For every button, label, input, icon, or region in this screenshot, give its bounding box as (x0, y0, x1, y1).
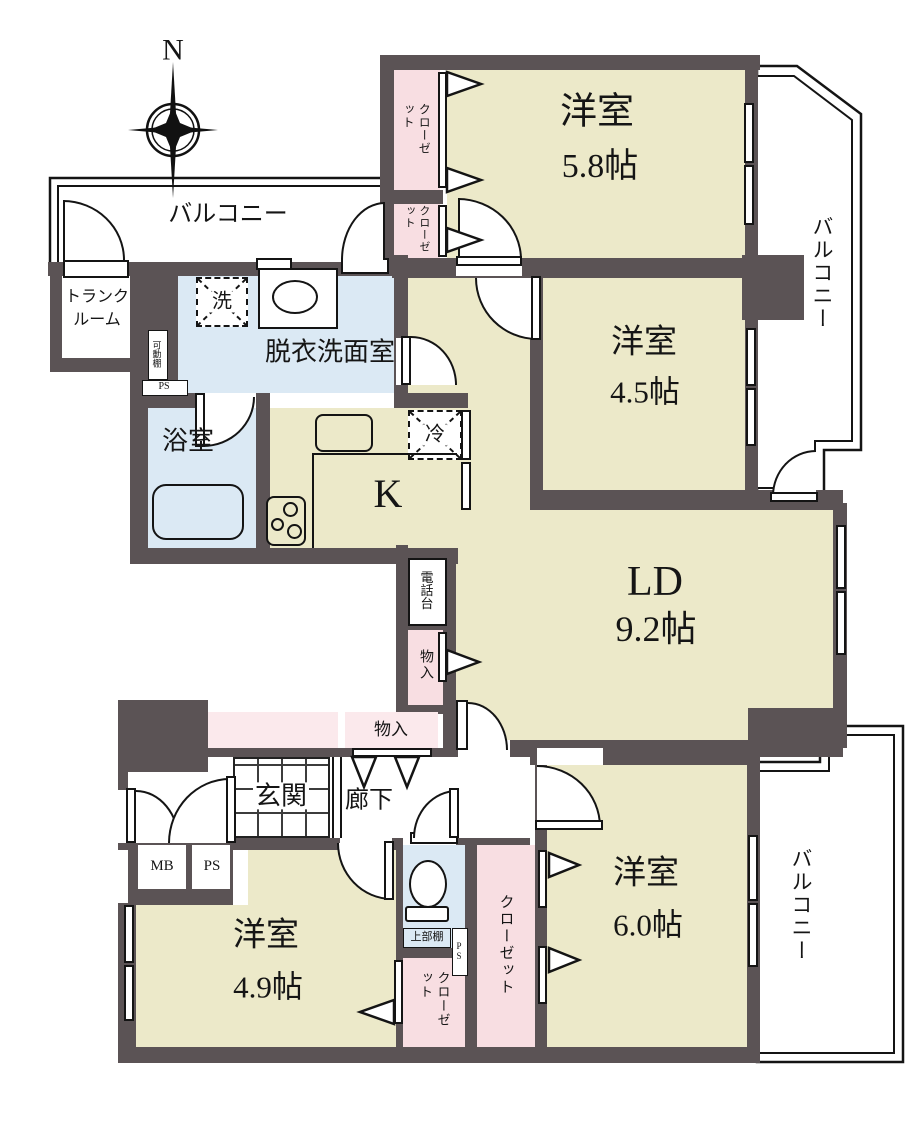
room-west45-name: 洋室 (611, 326, 677, 361)
closet-d-label: クローゼット (496, 894, 517, 996)
closet-c-label: クローゼット (416, 971, 451, 1031)
room-west49-size: 4.9帖 (233, 972, 303, 1005)
mb-label: MB (150, 859, 173, 875)
hall-label: 廊下 (345, 788, 393, 813)
balcony-top-label: バルコニー (168, 202, 288, 227)
trunk-room-label-line1: トランク (65, 290, 129, 307)
washer-label: 洗 (210, 292, 234, 313)
upper-shelf-label: 上部棚 (411, 932, 444, 944)
room-ld-size: 9.2帖 (615, 611, 696, 649)
phone-stand-label: 電話台 (417, 571, 436, 610)
monoire-front-label: 物入 (374, 721, 408, 739)
door-direction-marks (0, 0, 921, 1134)
monoire-side-label: 物入 (415, 649, 435, 681)
room-ld-name: LD (627, 560, 683, 604)
balcony-right-top-label: バルコニー (807, 216, 837, 331)
room-west58-name: 洋室 (560, 94, 634, 133)
ps-mini-label: PS (454, 941, 464, 961)
ps-side-label: PS (158, 382, 169, 393)
room-west45-size: 4.5帖 (610, 377, 680, 410)
fridge-label: 冷 (423, 425, 447, 446)
ps-label: PS (204, 859, 221, 875)
balcony-right-bottom-label: バルコニー (786, 848, 816, 963)
room-west49-name: 洋室 (233, 919, 299, 954)
kitchen-label: K (374, 473, 403, 515)
bath-label: 浴室 (162, 427, 214, 454)
trunk-room-label-line2: ルーム (73, 313, 121, 330)
closet-a-label: クローゼット (400, 103, 432, 157)
closet-b-label: クローゼット (401, 205, 431, 255)
movable-shelf-label: 可動棚 (151, 341, 164, 368)
room-west60-size: 6.0帖 (613, 910, 683, 943)
floor-plan: N バルコニー バルコニー バルコニー 洋室 5.8帖 洋室 4.5帖 LD 9… (0, 0, 921, 1134)
room-west58-size: 5.8帖 (562, 149, 639, 185)
genkan-label: 玄関 (253, 782, 309, 809)
washroom-label: 脱衣洗面室 (265, 338, 395, 365)
room-west60-name: 洋室 (613, 857, 679, 892)
